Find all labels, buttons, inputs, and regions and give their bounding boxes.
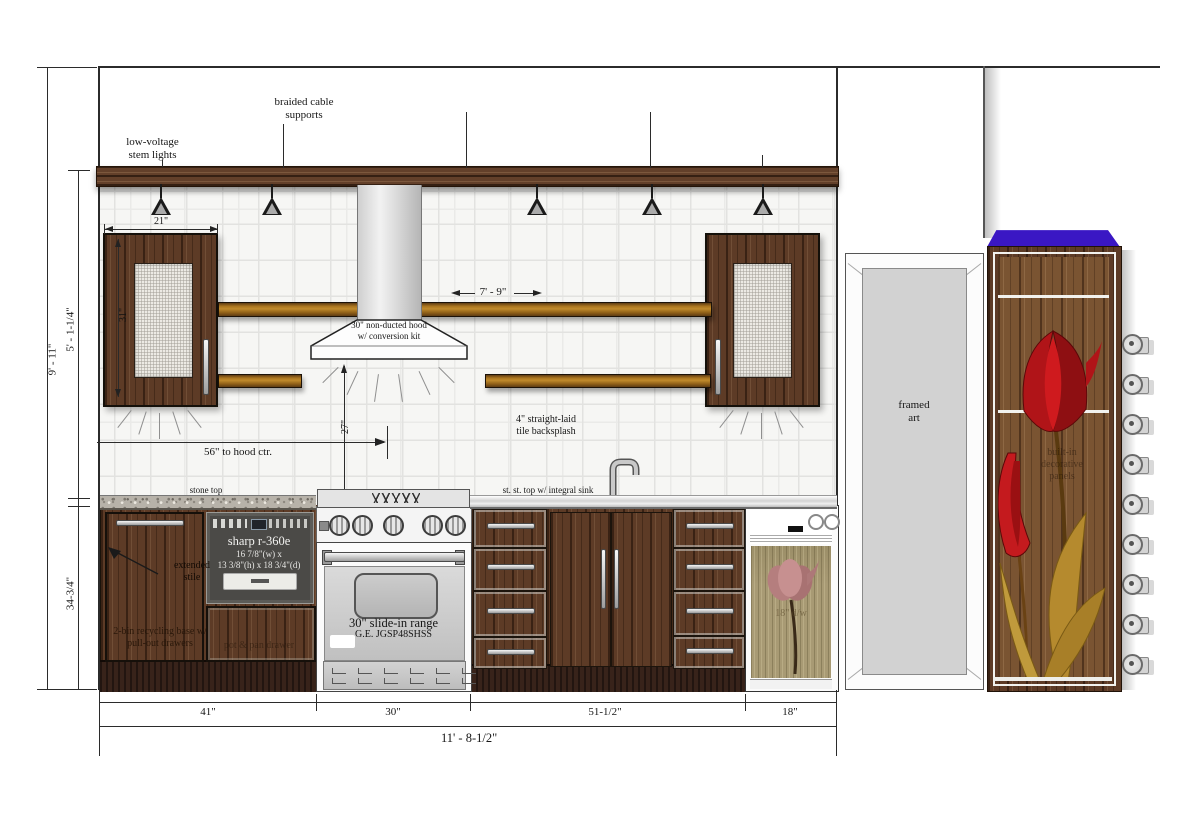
tall-cabinet-faint-label: built-in decorative panels xyxy=(1023,447,1101,482)
range-backguard xyxy=(317,489,470,508)
cup-hook-rail xyxy=(1122,334,1162,674)
drawer xyxy=(473,591,547,637)
zigzag-trim xyxy=(372,493,420,503)
door-handle xyxy=(614,549,619,609)
upper-cabinet-right xyxy=(705,233,820,407)
recess-shadow xyxy=(985,68,1001,238)
range-knob xyxy=(445,515,466,536)
oven-window xyxy=(354,573,438,619)
dim-extension-line xyxy=(836,690,837,756)
dishwasher-base xyxy=(750,679,832,689)
pendant-light-icon xyxy=(151,184,171,216)
drawer xyxy=(473,548,547,591)
dim-seg-51: 51-1/2" xyxy=(563,706,647,719)
gas-valve xyxy=(319,521,329,531)
door-handle xyxy=(116,520,184,526)
tall-cabinet-blue-top xyxy=(987,229,1120,247)
drawer xyxy=(673,509,745,548)
toe-kick xyxy=(100,660,316,692)
faucet-icon xyxy=(606,458,642,498)
cabinet-handle xyxy=(715,339,721,395)
leader-line xyxy=(162,160,163,167)
framed-art: framed art xyxy=(845,253,984,690)
drawer xyxy=(673,591,745,636)
cup-hook-icon xyxy=(1122,614,1158,638)
mesh-door-insert xyxy=(733,263,792,378)
dim-seg-18: 18" xyxy=(760,706,820,719)
label-braided-cable-supports: braided cable supports xyxy=(248,96,360,122)
label-stainless-top: st. st. top w/ integral sink xyxy=(490,485,606,496)
dim-line-segments xyxy=(100,702,837,703)
light-rays-icon xyxy=(118,405,202,437)
label-stone-top: stone top xyxy=(175,485,237,496)
range-control-deck xyxy=(316,506,472,542)
dim-extension-line xyxy=(99,690,100,756)
hood-chimney xyxy=(357,185,422,330)
pendant-light-icon xyxy=(642,184,662,216)
ceiling-line xyxy=(100,66,1160,68)
dial-icon xyxy=(808,514,824,530)
label-low-voltage-lights: low-voltage stem lights xyxy=(100,136,205,162)
wood-shelf-lower-right xyxy=(485,374,711,388)
dishwasher-vent xyxy=(750,534,832,544)
range-knob xyxy=(383,515,404,536)
kitchen-elevation-drawing: low-voltage stem lights braided cable su… xyxy=(0,0,1200,821)
microwave-buttons xyxy=(213,519,247,528)
oven-door: 30" slide-in range G.E. JGSP48SHSS xyxy=(324,566,465,661)
pan-drawer: pot & pan drawer xyxy=(206,606,316,662)
range-knob xyxy=(352,515,373,536)
pan-drawer-faint-label: pot & pan drawer xyxy=(208,640,310,652)
sink-base-door-right xyxy=(611,512,672,667)
cup-hook-icon xyxy=(1122,334,1158,358)
dim-seg-30: 30" xyxy=(363,706,423,719)
stainless-countertop xyxy=(470,495,837,509)
stone-countertop xyxy=(100,495,316,510)
dim-line-56 xyxy=(97,442,384,443)
dim-line-sections xyxy=(78,170,79,690)
drawer xyxy=(673,636,745,669)
pendant-light-icon xyxy=(527,184,547,216)
art-mat xyxy=(862,268,967,675)
dim-line-21 xyxy=(105,229,218,230)
light-rays-icon xyxy=(720,405,804,437)
label-recycling-base: 2-bin recycling base w/ pull-out drawers xyxy=(102,626,218,650)
drawer xyxy=(473,509,547,548)
dim-hood-clearance: 27" xyxy=(340,407,352,447)
range-body: 30" slide-in range G.E. JGSP48SHSS xyxy=(316,542,472,692)
microwave-name: sharp r-360e xyxy=(207,534,311,549)
pendant-light-icon xyxy=(753,184,773,216)
dial-icon xyxy=(824,514,840,530)
drawer xyxy=(673,548,745,591)
dishwasher-decor-panel: 18" d/w xyxy=(751,546,831,678)
dishwasher: 18" d/w xyxy=(745,505,839,692)
microwave-sharp-r360e: sharp r-360e 16 7/8"(w) x 13 3/8"(h) x 1… xyxy=(206,512,314,604)
label-tile-backsplash: 4" straight-laid tile backsplash xyxy=(498,414,594,438)
cup-hook-icon xyxy=(1122,574,1158,598)
tall-cabinet: built-in decorative panels xyxy=(987,246,1122,692)
range-badge xyxy=(330,635,355,648)
dim-line-total xyxy=(100,726,837,727)
pendant-light-icon xyxy=(262,184,282,216)
range-knob xyxy=(329,515,350,536)
dim-counter-height: 34-3/4" xyxy=(65,564,78,622)
label-extended-stile: extended stile xyxy=(146,560,238,584)
broiler-drawer xyxy=(323,661,466,690)
label-hood: 30" non-ducted hood w/ conversion kit xyxy=(330,320,448,341)
dim-wall-height: 9' - 11" xyxy=(47,329,60,389)
cup-hook-icon xyxy=(1122,414,1158,438)
wood-rail xyxy=(96,166,839,187)
wood-shelf-lower-left xyxy=(218,374,302,388)
braided-cable xyxy=(283,124,284,168)
microwave-display xyxy=(251,519,267,530)
dim-seg-41: 41" xyxy=(178,706,238,719)
wood-shelf-upper xyxy=(218,302,712,317)
dishwasher-faint-label: 18" d/w xyxy=(759,608,823,620)
braided-cable xyxy=(650,112,651,168)
dim-upper-section: 5' - 1-1/4" xyxy=(65,293,78,365)
dim-shelf-length: 7' - 9" xyxy=(471,286,515,299)
dishwasher-control-panel xyxy=(750,510,832,534)
tulip-marquetry-icon xyxy=(998,301,1109,681)
oven-handle xyxy=(324,552,465,562)
dim-upper-cab-width: 21" xyxy=(133,216,189,228)
cup-hook-icon xyxy=(1122,494,1158,518)
dim-total-width: 11' - 8-1/2" xyxy=(441,731,531,746)
cup-hook-icon xyxy=(1122,534,1158,558)
cup-hook-icon xyxy=(1122,454,1158,478)
range-knob xyxy=(422,515,443,536)
mesh-door-insert xyxy=(134,263,193,378)
door-handle xyxy=(601,549,606,609)
cabinet-handle xyxy=(203,339,209,395)
drawer xyxy=(473,637,547,669)
cup-hook-icon xyxy=(1122,374,1158,398)
braided-cable xyxy=(466,112,467,168)
dim-hood-center: 56" to hood ctr. xyxy=(182,446,294,459)
label-framed-art: framed art xyxy=(879,399,949,425)
microwave-buttons xyxy=(269,519,307,528)
braided-cable xyxy=(762,155,763,168)
microwave-dims-1: 16 7/8"(w) x xyxy=(207,549,311,560)
cup-hook-icon xyxy=(1122,654,1158,678)
dim-upper-cab-height: 31" xyxy=(118,295,130,335)
